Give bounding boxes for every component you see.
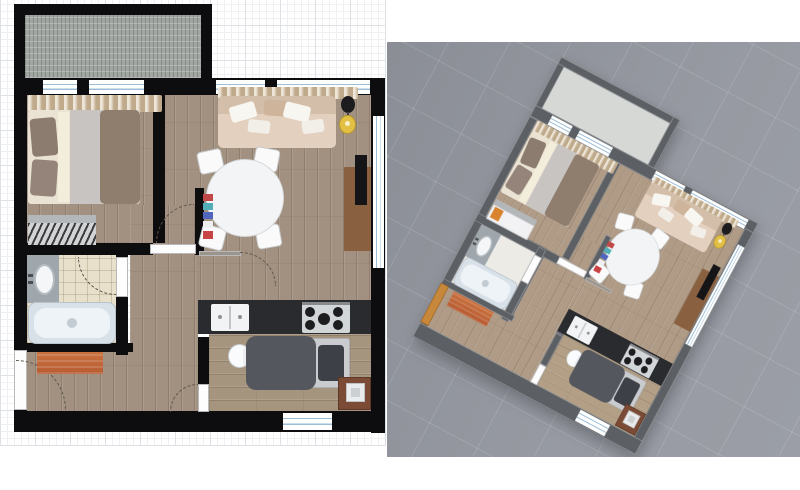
- furniture-part: [28, 223, 96, 245]
- furniture-part: [341, 96, 355, 113]
- furniture-radiator[interactable]: [28, 215, 96, 245]
- furniture-tv-stand[interactable]: [344, 155, 371, 251]
- furniture-part: [355, 155, 367, 205]
- wall-balcony-top[interactable]: [14, 4, 212, 15]
- furniture-part: [29, 117, 58, 157]
- wall-bathroom-south[interactable]: [14, 343, 133, 352]
- furniture-part: [28, 281, 33, 284]
- furniture-part: [203, 231, 213, 239]
- furniture-part: [34, 264, 55, 295]
- furniture-part: [206, 159, 284, 237]
- furniture-part: [67, 318, 77, 328]
- furniture-part: [203, 221, 213, 228]
- window-bedroom-b[interactable]: [89, 80, 144, 94]
- furniture-part: [28, 274, 33, 277]
- furniture-part: [238, 315, 242, 319]
- floorplanner-workspace: [0, 0, 800, 490]
- furniture-part: [203, 212, 213, 219]
- furniture-part: [203, 194, 213, 201]
- door-living[interactable]: [199, 251, 241, 256]
- view-3d-canvas[interactable]: [387, 42, 800, 457]
- furniture-part: [318, 345, 344, 381]
- furniture-part: [305, 307, 315, 317]
- furniture-kitchen-counter[interactable]: [198, 300, 371, 334]
- door-bedroom[interactable]: [150, 244, 196, 254]
- furniture-part: [30, 159, 58, 197]
- furniture-appliance-rug[interactable]: [338, 377, 371, 410]
- furniture-part: [203, 203, 213, 210]
- furniture-shelf-books[interactable]: [202, 193, 214, 241]
- apartment-2d-plan: [0, 0, 386, 433]
- furniture-part: [247, 119, 270, 134]
- furniture-bathtub[interactable]: [28, 302, 116, 344]
- furniture-floor-lamp[interactable]: [336, 96, 358, 138]
- furniture-bath-sink[interactable]: [27, 255, 59, 303]
- window-bedroom2-south[interactable]: [283, 413, 332, 430]
- furniture-part: [58, 112, 69, 202]
- furniture-part: [100, 110, 140, 204]
- furniture-part: [302, 302, 350, 305]
- window-bedroom-a[interactable]: [43, 80, 77, 94]
- wall-balcony-left[interactable]: [14, 4, 25, 80]
- room-balcony: [25, 15, 201, 78]
- window-living-east[interactable]: [373, 116, 384, 268]
- furniture-part: [229, 306, 231, 329]
- furniture-part: [333, 320, 343, 330]
- furniture-part: [28, 215, 96, 223]
- door-bathroom[interactable]: [116, 257, 128, 297]
- furniture-single-bed[interactable]: [246, 336, 350, 390]
- furniture-sofa[interactable]: [218, 96, 336, 148]
- door-wc[interactable]: [198, 384, 209, 412]
- furniture-part: [218, 315, 222, 319]
- plan-2d-canvas[interactable]: [0, 0, 386, 446]
- furniture-part: [305, 320, 315, 330]
- furniture-part: [318, 313, 330, 325]
- furniture-entry-rug[interactable]: [37, 352, 103, 374]
- furniture-part: [333, 307, 343, 317]
- furniture-part: [345, 121, 350, 126]
- furniture-part: [70, 110, 102, 204]
- wall-wc-west[interactable]: [198, 337, 209, 384]
- wall-balcony-right[interactable]: [201, 4, 212, 80]
- furniture-part: [37, 352, 103, 374]
- furniture-part: [351, 388, 360, 397]
- furniture-part: [246, 336, 316, 390]
- furniture-double-bed[interactable]: [28, 110, 140, 204]
